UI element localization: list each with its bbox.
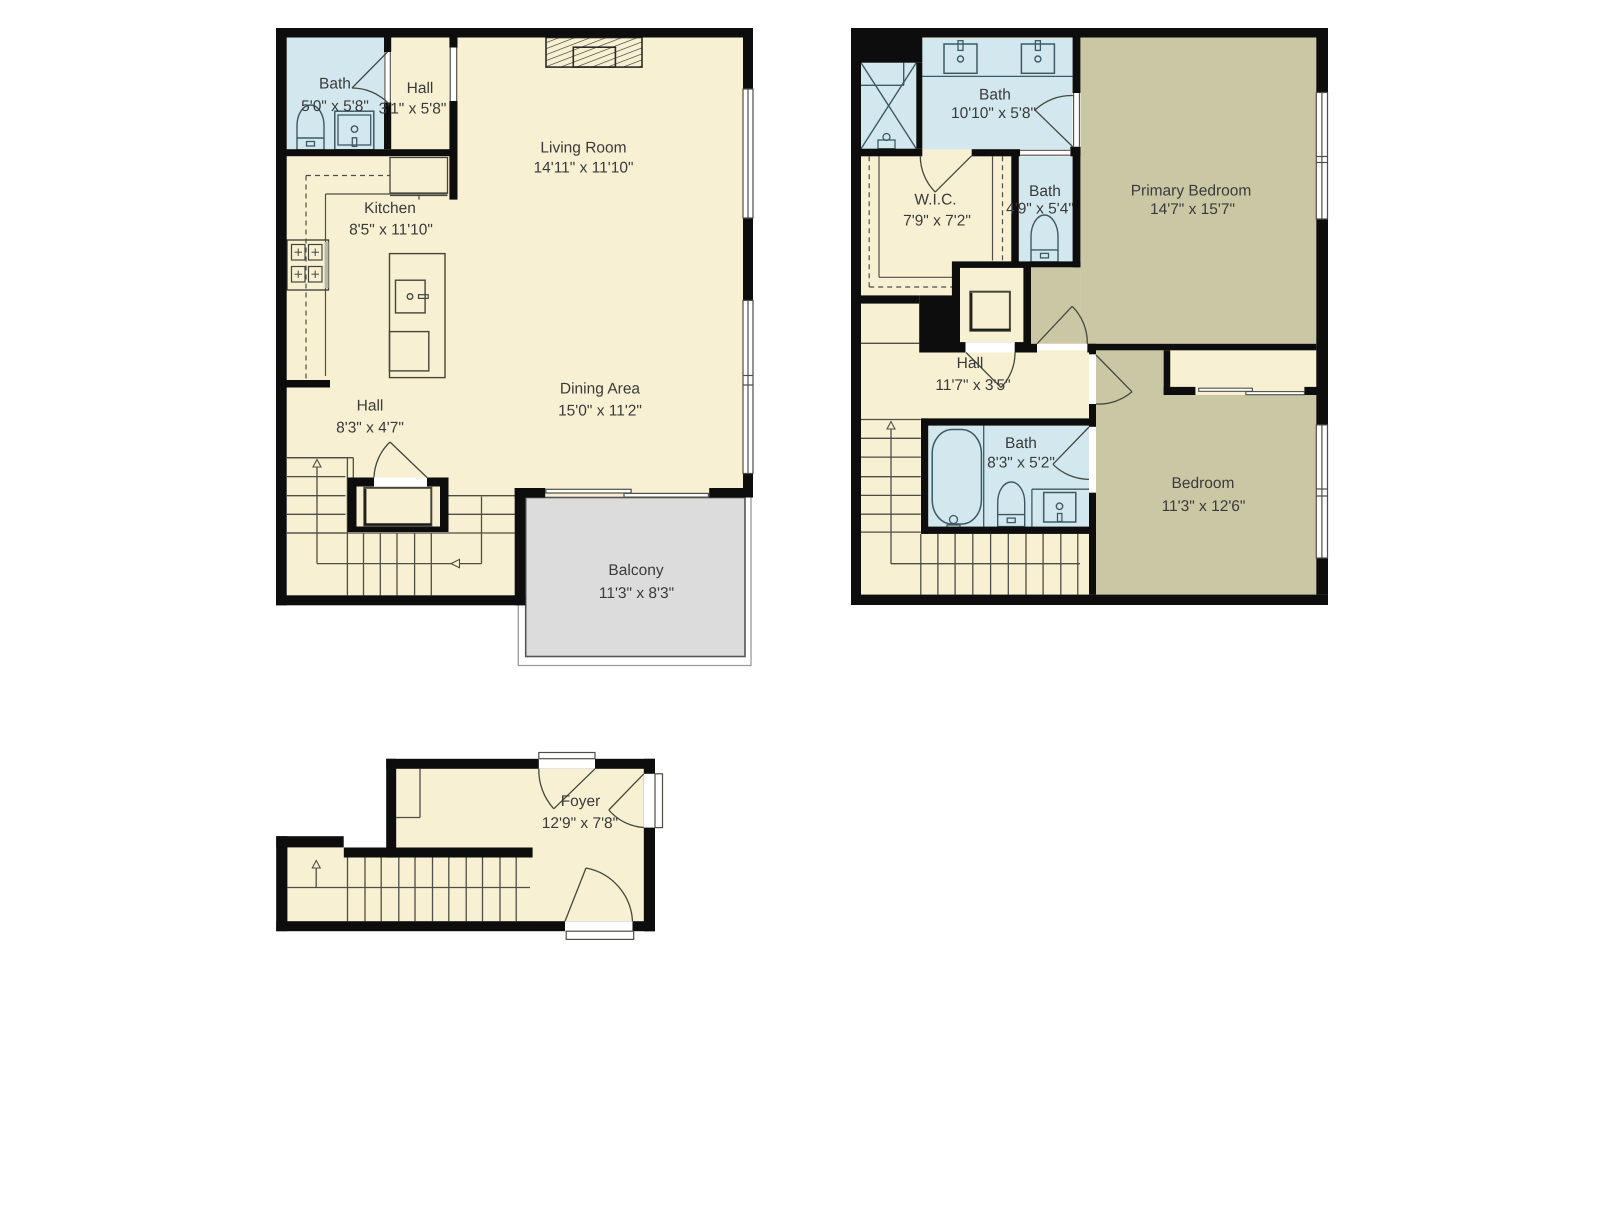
svg-text:Bath: Bath xyxy=(1005,435,1037,452)
svg-text:11'3" x 8'3": 11'3" x 8'3" xyxy=(599,585,674,602)
svg-text:Balcony: Balcony xyxy=(608,562,663,579)
svg-text:5'0" x 5'8": 5'0" x 5'8" xyxy=(301,98,369,115)
svg-text:Hall: Hall xyxy=(957,355,984,372)
svg-text:Bath: Bath xyxy=(1029,183,1061,200)
svg-text:Bath: Bath xyxy=(979,87,1011,104)
svg-text:15'0" x 11'2": 15'0" x 11'2" xyxy=(558,403,642,420)
svg-text:14'7" x 15'7": 14'7" x 15'7" xyxy=(1150,201,1235,218)
svg-text:8'3" x 4'7": 8'3" x 4'7" xyxy=(336,420,404,437)
svg-text:11'7" x 3'5": 11'7" x 3'5" xyxy=(935,377,1010,394)
svg-text:4'9" x 5'4": 4'9" x 5'4" xyxy=(1006,201,1074,218)
svg-text:Living Room: Living Room xyxy=(540,140,626,157)
svg-text:Dining Area: Dining Area xyxy=(560,381,641,398)
svg-text:8'3" x 5'2": 8'3" x 5'2" xyxy=(987,455,1055,472)
svg-text:10'10" x 5'8": 10'10" x 5'8" xyxy=(951,105,1036,122)
svg-text:14'11" x 11'10": 14'11" x 11'10" xyxy=(534,160,634,177)
svg-text:Kitchen: Kitchen xyxy=(364,200,416,217)
svg-text:Foyer: Foyer xyxy=(561,793,601,810)
svg-text:Hall: Hall xyxy=(357,398,384,415)
svg-text:Primary Bedroom: Primary Bedroom xyxy=(1131,183,1252,200)
svg-text:12'9" x 7'8": 12'9" x 7'8" xyxy=(542,815,618,832)
svg-text:Bath: Bath xyxy=(319,76,351,93)
svg-text:Hall: Hall xyxy=(407,80,434,97)
svg-text:7'9" x 7'2": 7'9" x 7'2" xyxy=(903,213,971,230)
svg-text:W.I.C.: W.I.C. xyxy=(914,192,956,209)
svg-text:3'1" x 5'8": 3'1" x 5'8" xyxy=(379,101,447,118)
svg-text:11'3" x 12'6": 11'3" x 12'6" xyxy=(1162,498,1246,515)
svg-text:Bedroom: Bedroom xyxy=(1172,475,1235,492)
svg-text:8'5" x 11'10": 8'5" x 11'10" xyxy=(349,222,433,239)
